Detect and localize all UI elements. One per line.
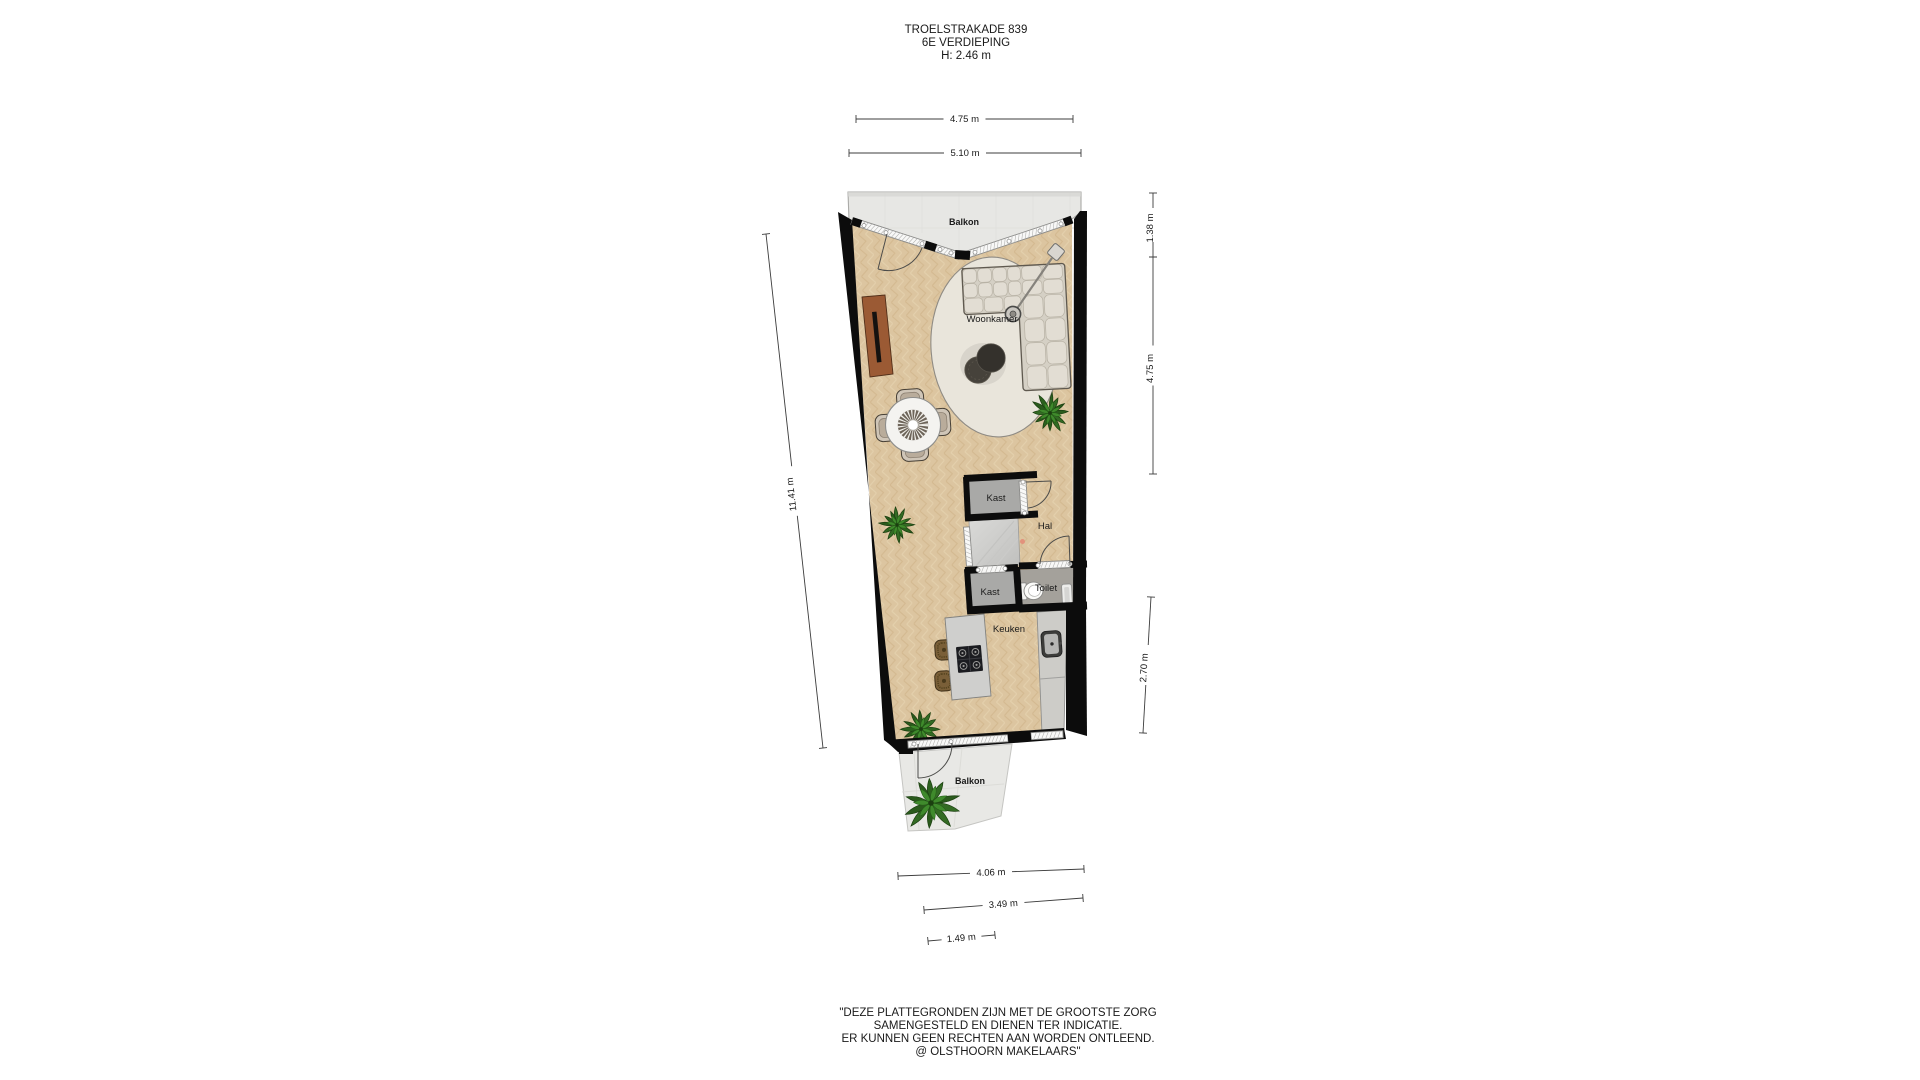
svg-text:Hal: Hal — [1038, 521, 1052, 532]
svg-text:4.06 m: 4.06 m — [976, 867, 1006, 879]
svg-text:Keuken: Keuken — [993, 624, 1025, 635]
svg-text:2.70 m: 2.70 m — [1138, 653, 1151, 683]
svg-text:Kast: Kast — [980, 587, 999, 598]
svg-text:TROELSTRAKADE 839: TROELSTRAKADE 839 — [905, 24, 1028, 36]
svg-text:1.38 m: 1.38 m — [1145, 213, 1156, 242]
svg-text:Woonkamer: Woonkamer — [966, 314, 1017, 325]
svg-text:3.49 m: 3.49 m — [988, 898, 1018, 911]
svg-text:ER KUNNEN GEEN RECHTEN AAN WOR: ER KUNNEN GEEN RECHTEN AAN WORDEN ONTLEE… — [841, 1033, 1154, 1045]
svg-text:SAMENGESTELD EN DIENEN TER IND: SAMENGESTELD EN DIENEN TER INDICATIE. — [874, 1020, 1123, 1032]
svg-text:Balkon: Balkon — [955, 776, 985, 786]
svg-text:@ OLSTHOORN MAKELAARS": @ OLSTHOORN MAKELAARS" — [915, 1046, 1080, 1058]
svg-text:Balkon: Balkon — [949, 217, 979, 227]
svg-text:"DEZE PLATTEGRONDEN ZIJN MET D: "DEZE PLATTEGRONDEN ZIJN MET DE GROOTSTE… — [839, 1007, 1156, 1019]
svg-text:4.75 m: 4.75 m — [950, 114, 979, 125]
svg-text:4.75 m: 4.75 m — [1145, 354, 1156, 383]
svg-text:6E VERDIEPING: 6E VERDIEPING — [922, 37, 1010, 49]
svg-text:Toilet: Toilet — [1035, 583, 1058, 594]
svg-text:Kast: Kast — [986, 493, 1005, 504]
svg-text:5.10 m: 5.10 m — [950, 148, 979, 159]
svg-text:H: 2.46 m: H: 2.46 m — [941, 50, 991, 62]
